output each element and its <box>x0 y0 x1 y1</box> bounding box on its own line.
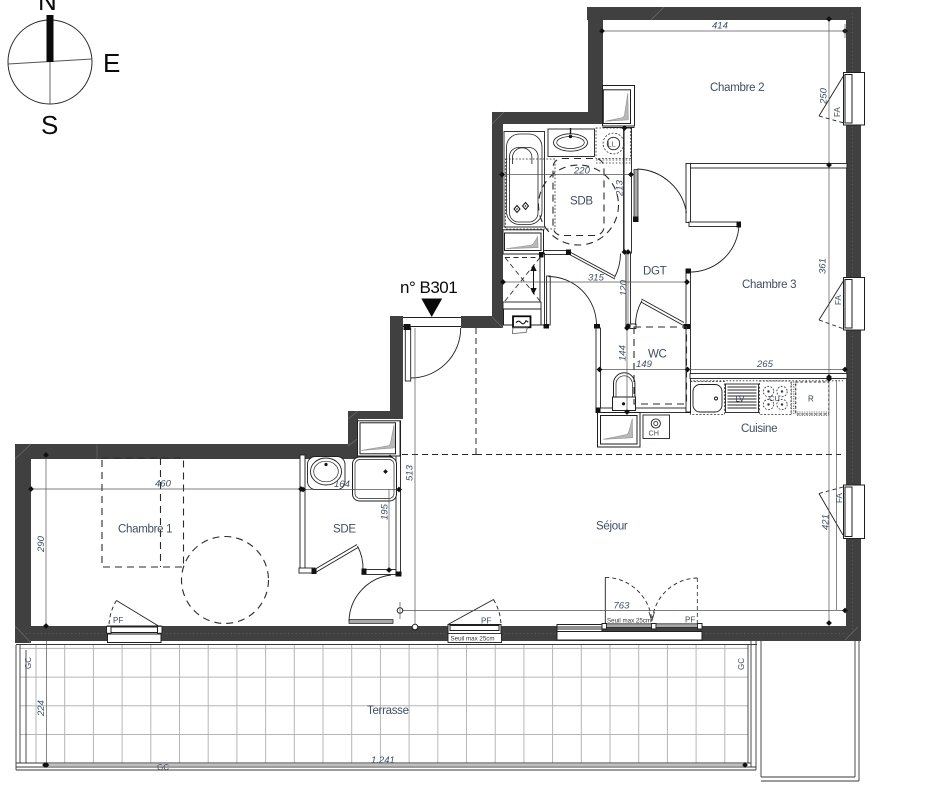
svg-text:N: N <box>38 0 57 16</box>
svg-text:195: 195 <box>380 503 391 520</box>
svg-text:361: 361 <box>818 258 829 274</box>
svg-text:149: 149 <box>636 359 653 370</box>
svg-text:R: R <box>808 395 814 404</box>
svg-text:Cuisine: Cuisine <box>741 423 777 435</box>
svg-text:250: 250 <box>819 87 830 105</box>
svg-text:120: 120 <box>619 279 630 296</box>
svg-text:220: 220 <box>573 166 591 177</box>
svg-text:WC: WC <box>648 349 667 361</box>
svg-text:290: 290 <box>36 535 47 553</box>
svg-text:Chambre 1: Chambre 1 <box>118 524 172 536</box>
svg-text:513: 513 <box>405 464 416 481</box>
svg-text:1.241: 1.241 <box>371 755 395 766</box>
svg-text:421: 421 <box>821 514 832 530</box>
svg-text:Chambre 3: Chambre 3 <box>742 279 796 291</box>
svg-text:Terrasse: Terrasse <box>367 705 409 717</box>
svg-text:164: 164 <box>334 479 350 490</box>
svg-text:DGT: DGT <box>643 266 667 278</box>
svg-text:GC: GC <box>157 763 169 772</box>
svg-text:PF: PF <box>685 615 695 624</box>
svg-text:144: 144 <box>618 345 629 361</box>
svg-text:E: E <box>103 48 120 78</box>
svg-text:Seuil max 25cm: Seuil max 25cm <box>607 617 651 624</box>
svg-text:SDB: SDB <box>570 196 593 208</box>
svg-text:S: S <box>41 110 58 140</box>
svg-text:SDE: SDE <box>333 524 356 536</box>
svg-text:PF: PF <box>481 617 491 626</box>
svg-text:n° B301: n° B301 <box>400 278 457 297</box>
svg-text:Chambre 2: Chambre 2 <box>710 82 764 94</box>
svg-text:414: 414 <box>712 21 728 32</box>
svg-text:315: 315 <box>588 273 605 284</box>
svg-text:FA: FA <box>833 107 842 117</box>
svg-text:Séjour: Séjour <box>596 521 628 533</box>
svg-text:CH: CH <box>649 429 659 438</box>
svg-text:Seuil max 25cm: Seuil max 25cm <box>451 636 495 643</box>
svg-text:763: 763 <box>614 601 631 612</box>
svg-text:GC: GC <box>737 658 746 670</box>
svg-text:LL: LL <box>608 142 616 149</box>
svg-text:224: 224 <box>36 700 47 717</box>
svg-text:PF: PF <box>113 616 123 625</box>
svg-text:FA: FA <box>834 295 843 305</box>
svg-text:213: 213 <box>615 179 626 197</box>
svg-text:265: 265 <box>756 359 774 370</box>
svg-text:460: 460 <box>155 479 172 490</box>
svg-text:CU: CU <box>769 394 780 403</box>
svg-text:GC: GC <box>24 657 33 669</box>
svg-text:LV: LV <box>736 395 745 404</box>
